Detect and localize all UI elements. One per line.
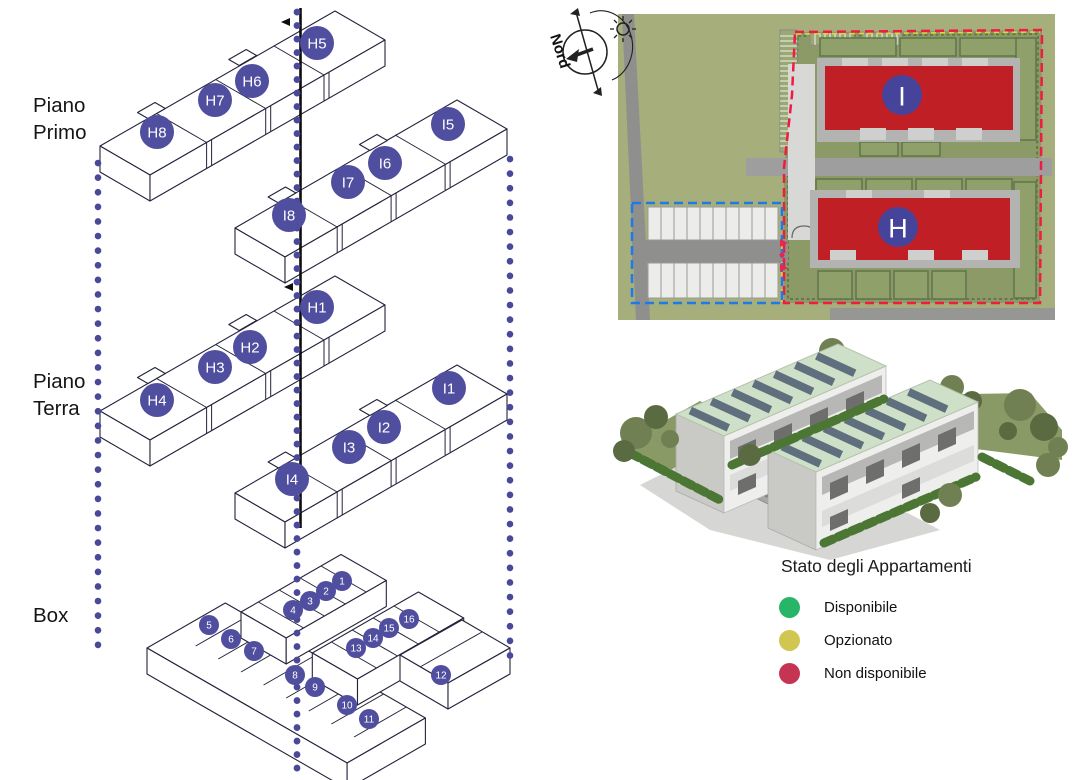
status-dot-unavailable [779, 663, 800, 684]
svg-text:4: 4 [290, 606, 296, 617]
label-box: Box [33, 604, 69, 627]
legend: Stato degli Appartamenti Disponibile Opz… [779, 556, 1069, 696]
unit-H2[interactable]: H2 [233, 330, 267, 364]
svg-text:I7: I7 [342, 174, 355, 191]
svg-text:H2: H2 [240, 339, 259, 356]
legend-item-label: Non disponibile [800, 665, 927, 682]
svg-text:8: 8 [292, 671, 298, 682]
svg-text:H5: H5 [307, 35, 326, 52]
unit-H7[interactable]: H7 [198, 83, 232, 117]
label-piano-primo: Piano [33, 94, 85, 117]
svg-text:I1: I1 [443, 380, 456, 397]
svg-text:9: 9 [312, 683, 318, 694]
svg-text:I8: I8 [283, 207, 296, 224]
unit-3[interactable]: 3 [300, 591, 320, 611]
legend-item-non-disponibile: Non disponibile [779, 663, 1069, 684]
section-arrow-icon [284, 283, 293, 291]
section-arrow-icon [281, 18, 290, 26]
status-dot-available [779, 597, 800, 618]
svg-text:13: 13 [350, 644, 362, 655]
svg-text:1: 1 [339, 577, 345, 588]
unit-11[interactable]: 11 [359, 709, 379, 729]
unit-H6[interactable]: H6 [235, 64, 269, 98]
svg-text:H6: H6 [242, 73, 261, 90]
svg-text:6: 6 [228, 635, 234, 646]
svg-text:H8: H8 [147, 124, 166, 141]
unit-I2[interactable]: I2 [367, 410, 401, 444]
unit-15[interactable]: 15 [379, 618, 399, 638]
svg-text:10: 10 [341, 701, 353, 712]
svg-text:5: 5 [206, 621, 212, 632]
floor-labels: Piano Primo Piano Terra Box [33, 94, 87, 627]
svg-text:16: 16 [403, 615, 415, 626]
unit-I6[interactable]: I6 [368, 146, 402, 180]
svg-text:12: 12 [435, 671, 447, 682]
label-piano-terra-2: Terra [33, 397, 80, 420]
unit-7[interactable]: 7 [244, 641, 264, 661]
legend-item-opzionato: Opzionato [779, 630, 1069, 651]
label-piano-terra: Piano [33, 370, 85, 393]
svg-text:2: 2 [323, 587, 329, 598]
svg-text:I2: I2 [378, 419, 391, 436]
svg-text:H7: H7 [205, 92, 224, 109]
svg-text:I6: I6 [379, 155, 392, 172]
unit-I7[interactable]: I7 [331, 165, 365, 199]
unit-I8[interactable]: I8 [272, 198, 306, 232]
site-plan: I H [530, 0, 1076, 332]
svg-text:11: 11 [364, 715, 375, 726]
svg-text:H4: H4 [147, 392, 166, 409]
unit-4[interactable]: 4 [283, 600, 303, 620]
svg-text:I4: I4 [286, 471, 299, 488]
legend-title: Stato degli Appartamenti [781, 556, 1069, 577]
unit-12[interactable]: 12 [431, 665, 451, 685]
unit-6[interactable]: 6 [221, 629, 241, 649]
plan-garage-area [632, 207, 788, 298]
plan-building-h[interactable]: H [810, 190, 1020, 268]
svg-text:3: 3 [307, 597, 313, 608]
svg-text:I3: I3 [343, 439, 356, 456]
unit-H8[interactable]: H8 [140, 115, 174, 149]
plan-building-i[interactable]: I [817, 58, 1020, 142]
building-i-label: I [898, 81, 906, 111]
building-h-label: H [888, 213, 908, 243]
svg-text:7: 7 [251, 647, 257, 658]
unit-13[interactable]: 13 [346, 638, 366, 658]
unit-9[interactable]: 9 [305, 677, 325, 697]
unit-5[interactable]: 5 [199, 615, 219, 635]
unit-I1[interactable]: I1 [432, 371, 466, 405]
label-piano-primo-2: Primo [33, 121, 87, 144]
buildings-render [600, 335, 1076, 560]
legend-item-disponibile: Disponibile [779, 597, 1069, 618]
svg-text:15: 15 [383, 624, 395, 635]
unit-H4[interactable]: H4 [140, 383, 174, 417]
legend-item-label: Opzionato [800, 632, 892, 649]
unit-H3[interactable]: H3 [198, 350, 232, 384]
unit-I5[interactable]: I5 [431, 107, 465, 141]
unit-H5[interactable]: H5 [300, 26, 334, 60]
status-dot-optioned [779, 630, 800, 651]
unit-I4[interactable]: I4 [275, 462, 309, 496]
unit-8[interactable]: 8 [285, 665, 305, 685]
legend-item-label: Disponibile [800, 599, 897, 616]
axonometric-diagram: Piano Primo Piano Terra Box [0, 0, 540, 780]
svg-text:H3: H3 [205, 359, 224, 376]
unit-H1[interactable]: H1 [300, 290, 334, 324]
svg-text:14: 14 [367, 634, 379, 645]
svg-text:H1: H1 [307, 299, 326, 316]
unit-10[interactable]: 10 [337, 695, 357, 715]
apartment-status-page: Piano Primo Piano Terra Box [0, 0, 1076, 780]
svg-text:I5: I5 [442, 116, 455, 133]
unit-16[interactable]: 16 [399, 609, 419, 629]
unit-I3[interactable]: I3 [332, 430, 366, 464]
